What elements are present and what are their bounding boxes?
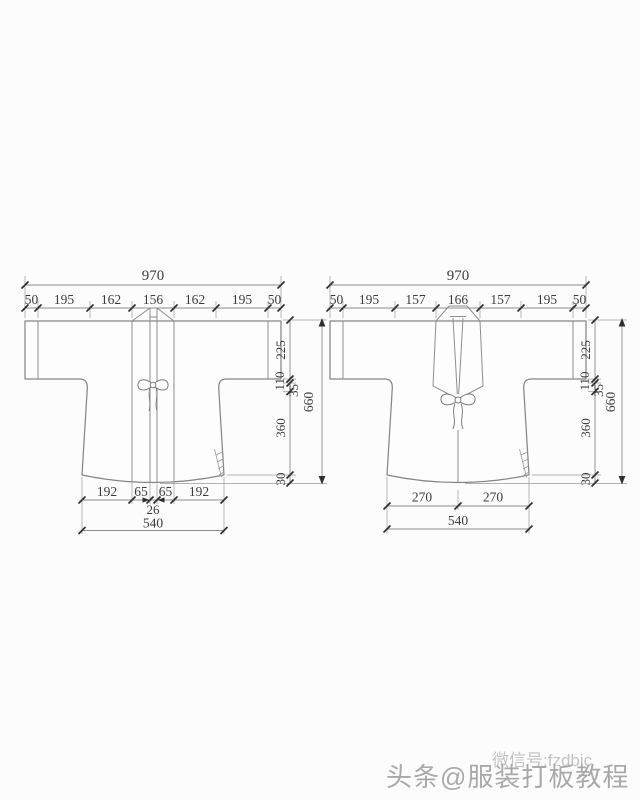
dim-label: 65 xyxy=(159,484,173,499)
dim-label: 110 xyxy=(272,371,287,390)
dim-label: 30 xyxy=(273,473,288,486)
dim-label: 195 xyxy=(359,292,380,307)
pattern-diagram: 970 50 195 162 156 162 195 50 225 110 35… xyxy=(0,0,640,800)
dim-label: 35 xyxy=(286,384,301,397)
dim-label: 30 xyxy=(578,473,593,486)
dim-label: 360 xyxy=(273,418,288,438)
dim-label: 110 xyxy=(577,371,592,390)
dim-label: 50 xyxy=(268,292,282,307)
dim-label: 195 xyxy=(232,292,253,307)
right-top-total-label: 970 xyxy=(447,268,470,284)
toutiao-watermark: 头条@服装打板教程 xyxy=(386,762,629,792)
watermark: 微信号:fzdbjc 微信号:fzdbjc 头条@服装打板教程 头条@服装打板教… xyxy=(386,751,631,793)
dim-label: 225 xyxy=(273,340,288,360)
right-length-total-label: 660 xyxy=(603,392,618,413)
left-hem-total-label: 540 xyxy=(143,516,164,531)
right-garment-drawing xyxy=(330,306,586,483)
dim-label: 270 xyxy=(483,490,504,505)
dim-label: 360 xyxy=(578,418,593,438)
pattern-tutorial-page: 970 50 195 162 156 162 195 50 225 110 35… xyxy=(0,0,640,800)
dim-label: 270 xyxy=(412,490,433,505)
dim-label: 192 xyxy=(97,484,117,499)
left-garment-outline xyxy=(25,321,281,483)
dim-label: 225 xyxy=(578,340,593,360)
right-hem-total-label: 540 xyxy=(448,513,469,528)
dim-label: 156 xyxy=(143,292,164,307)
dim-label: 166 xyxy=(448,292,469,307)
dim-label: 50 xyxy=(330,292,344,307)
dim-label: 162 xyxy=(185,292,205,307)
dim-label: 157 xyxy=(405,292,426,307)
left-length-total-label: 660 xyxy=(301,392,316,413)
left-top-total-label: 970 xyxy=(142,268,165,284)
dim-label: 50 xyxy=(573,292,587,307)
dim-label: 195 xyxy=(54,292,75,307)
dim-label: 50 xyxy=(25,292,39,307)
dim-label: 195 xyxy=(537,292,558,307)
dim-label: 192 xyxy=(189,484,209,499)
dim-label: 157 xyxy=(490,292,511,307)
dim-label: 162 xyxy=(101,292,121,307)
left-garment-drawing xyxy=(25,308,281,483)
dim-label: 65 xyxy=(134,484,148,499)
